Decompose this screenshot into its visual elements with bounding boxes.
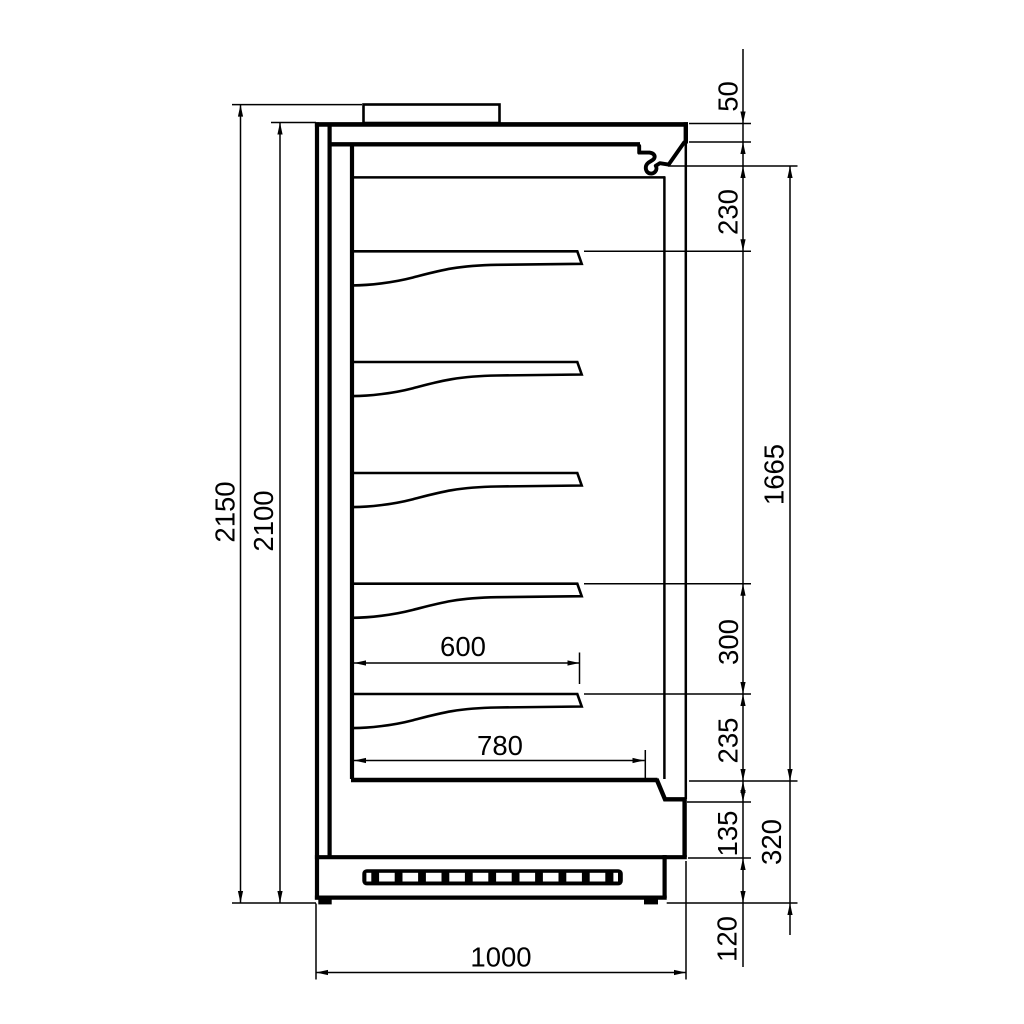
svg-text:780: 780 [477, 730, 523, 761]
svg-text:230: 230 [713, 189, 744, 235]
svg-text:2100: 2100 [248, 490, 279, 551]
svg-text:2150: 2150 [210, 481, 241, 542]
svg-text:1000: 1000 [470, 942, 531, 973]
svg-text:320: 320 [756, 819, 787, 865]
svg-text:135: 135 [712, 811, 743, 857]
svg-text:120: 120 [712, 916, 743, 962]
svg-text:300: 300 [713, 619, 744, 665]
svg-text:235: 235 [713, 718, 744, 764]
svg-text:1665: 1665 [759, 444, 790, 505]
svg-text:600: 600 [440, 631, 486, 662]
svg-text:50: 50 [713, 81, 744, 112]
